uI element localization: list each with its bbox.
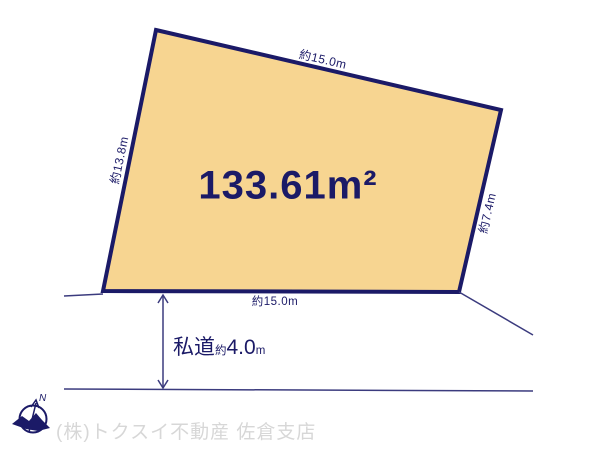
compass-needle — [12, 413, 50, 431]
land-plot-diagram: N 133.61m² 約15.0m 約13.8m 約7.4m 約15.0m 私道… — [0, 0, 600, 450]
diagram-shapes: N — [0, 0, 600, 450]
road-edge-upper-left — [64, 294, 103, 296]
plot-polygon — [103, 30, 501, 292]
compass-icon: N — [12, 393, 50, 433]
road-width-value: 4.0 — [227, 336, 256, 359]
road-label: 私道約4.0m — [173, 331, 265, 361]
dimension-bottom: 約15.0m — [252, 293, 298, 309]
compass-north-label: N — [39, 393, 47, 404]
road-edge-right-diagonal — [459, 292, 533, 335]
road-edge-bottom — [64, 389, 533, 391]
road-width-arrow — [158, 295, 168, 388]
road-width-unit: m — [256, 345, 266, 357]
area-label: 133.61m² — [198, 164, 377, 209]
road-name: 私道 — [173, 336, 215, 359]
company-watermark: (株)トクスイ不動産 佐倉支店 — [56, 417, 316, 444]
road-approx: 約 — [215, 345, 227, 357]
